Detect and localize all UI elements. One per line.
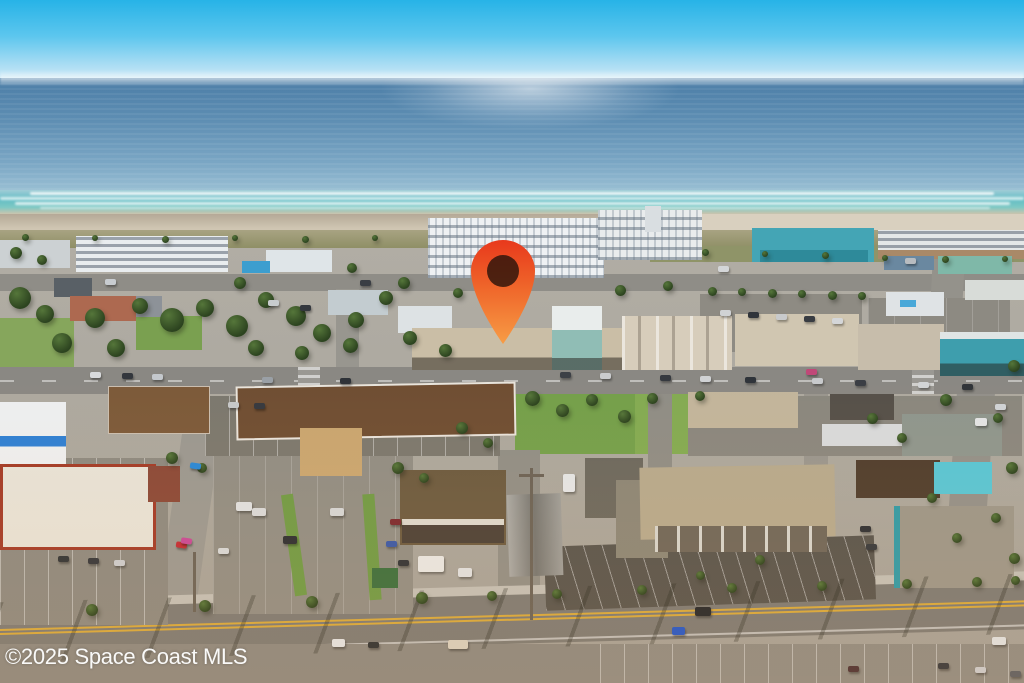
tree: [453, 288, 463, 298]
tree: [696, 571, 705, 580]
storefront: [552, 330, 602, 370]
car: [122, 373, 133, 379]
tree: [419, 473, 429, 483]
tree: [695, 391, 705, 401]
tree: [1009, 553, 1020, 564]
block: [940, 332, 1024, 339]
tree: [343, 338, 358, 353]
car: [995, 404, 1006, 410]
redtrim: [0, 464, 156, 550]
car: [600, 373, 611, 379]
car: [672, 627, 685, 635]
gable-v: [507, 493, 564, 577]
car: [560, 372, 571, 378]
tree: [762, 251, 768, 257]
car: [386, 541, 397, 547]
tree: [22, 234, 29, 241]
tree: [991, 513, 1001, 523]
tree: [942, 256, 949, 263]
block: [645, 206, 661, 232]
block: [902, 414, 1002, 456]
win-h: [76, 236, 228, 272]
foam: [30, 192, 994, 195]
tree: [226, 315, 248, 337]
car: [218, 548, 229, 554]
tree: [798, 290, 806, 298]
car: [776, 314, 787, 320]
block: [552, 306, 602, 332]
car: [448, 640, 468, 649]
block: [266, 250, 332, 272]
tree: [525, 391, 540, 406]
car: [228, 402, 239, 408]
win-h: [878, 230, 1024, 252]
block: [54, 278, 92, 297]
tree: [647, 393, 658, 404]
tree: [196, 299, 214, 317]
tree: [398, 277, 410, 289]
tree: [586, 394, 598, 406]
car: [152, 374, 163, 380]
car: [832, 318, 843, 324]
tree: [637, 585, 647, 595]
car: [236, 502, 252, 511]
block: [242, 261, 270, 273]
car: [855, 380, 866, 386]
block: [148, 466, 180, 502]
tree: [456, 422, 468, 434]
tree: [348, 312, 364, 328]
tree: [858, 292, 866, 300]
gables: [622, 316, 732, 370]
car: [905, 258, 916, 264]
tree: [347, 263, 357, 273]
tree: [940, 394, 952, 406]
block: [760, 250, 868, 262]
car: [262, 377, 273, 383]
tree: [993, 413, 1003, 423]
car: [563, 474, 575, 492]
car: [962, 384, 973, 390]
car: [90, 372, 101, 378]
tree: [379, 291, 393, 305]
watermark: ©2025 Space Coast MLS: [5, 644, 247, 670]
block: [938, 256, 1012, 274]
stalls-faint: [213, 456, 413, 614]
car: [720, 310, 731, 316]
tree: [306, 596, 318, 608]
tree: [1006, 462, 1018, 474]
cols: [655, 526, 827, 552]
car: [340, 378, 351, 384]
tree: [817, 581, 827, 591]
block: [965, 280, 1024, 300]
tree: [166, 452, 178, 464]
tree: [37, 255, 47, 265]
tree: [897, 433, 907, 443]
tree: [902, 579, 912, 589]
tree: [867, 413, 878, 424]
tree: [248, 340, 264, 356]
tree: [36, 305, 54, 323]
tree: [487, 591, 497, 601]
bluestripe: [0, 402, 66, 464]
car: [1010, 671, 1021, 677]
tree: [10, 247, 22, 259]
car: [268, 300, 279, 306]
tree: [199, 600, 211, 612]
car: [368, 642, 379, 648]
block: [300, 428, 362, 476]
car: [718, 266, 729, 272]
tree: [132, 298, 148, 314]
car: [748, 312, 759, 318]
tree: [85, 308, 105, 328]
block: [519, 474, 544, 477]
car: [700, 376, 711, 382]
tree: [107, 339, 125, 357]
location-pin-icon: [468, 237, 538, 345]
car: [332, 639, 345, 647]
car: [918, 382, 929, 388]
car: [992, 637, 1006, 645]
tree: [615, 285, 626, 296]
tree: [232, 235, 238, 241]
car: [806, 369, 817, 375]
tree: [882, 255, 888, 261]
car: [812, 378, 823, 384]
tree: [9, 287, 31, 309]
ridge: [236, 382, 517, 441]
block: [858, 324, 944, 370]
foam: [15, 202, 1010, 205]
ridge2: [108, 386, 210, 434]
car: [860, 526, 871, 532]
car: [660, 375, 671, 381]
tree: [1008, 360, 1020, 372]
car: [938, 663, 949, 669]
tree: [295, 346, 309, 360]
tree: [234, 277, 246, 289]
block: [372, 568, 398, 588]
car: [458, 568, 472, 577]
tree: [727, 583, 737, 593]
car: [252, 508, 266, 516]
tree: [1002, 256, 1008, 262]
tree: [1011, 576, 1020, 585]
tree: [160, 308, 184, 332]
tree: [483, 438, 493, 448]
car: [866, 544, 877, 550]
car: [398, 560, 409, 566]
tree: [822, 252, 829, 259]
car: [418, 556, 444, 572]
car: [254, 403, 265, 409]
tree: [52, 333, 72, 353]
block: [402, 525, 504, 543]
car: [58, 556, 69, 562]
block: [856, 460, 940, 498]
foam: [0, 197, 1024, 200]
car: [105, 279, 116, 285]
car: [975, 667, 986, 673]
car: [848, 666, 859, 672]
tree: [162, 236, 169, 243]
tree: [738, 288, 746, 296]
tree: [702, 249, 709, 256]
tree: [828, 291, 837, 300]
tree: [755, 555, 765, 565]
car: [745, 377, 756, 383]
tree: [302, 236, 309, 243]
block: [934, 462, 992, 494]
car: [360, 280, 371, 286]
aerial-listing-photo: ©2025 Space Coast MLS: [0, 0, 1024, 683]
stalls: [600, 644, 1024, 683]
tree: [392, 462, 404, 474]
block: [822, 424, 904, 446]
tree: [927, 493, 937, 503]
tree: [403, 331, 417, 345]
tree: [372, 235, 378, 241]
pin-hole: [487, 255, 519, 287]
tree: [552, 589, 562, 599]
car: [330, 508, 344, 516]
tree: [86, 604, 98, 616]
tree: [618, 410, 631, 423]
tree: [708, 287, 717, 296]
tree: [952, 533, 962, 543]
car: [283, 536, 297, 544]
car: [975, 418, 987, 426]
tree: [556, 404, 569, 417]
tree: [313, 324, 331, 342]
car: [114, 560, 125, 566]
crosswalk: [912, 367, 934, 394]
tree: [92, 235, 98, 241]
block: [830, 394, 894, 420]
block: [900, 300, 916, 307]
tree: [768, 289, 777, 298]
car: [804, 316, 815, 322]
foam: [40, 207, 990, 209]
tree: [439, 344, 452, 357]
tree: [663, 281, 673, 291]
tree: [416, 592, 428, 604]
car: [300, 305, 311, 311]
tree: [972, 577, 982, 587]
car: [88, 558, 99, 564]
car: [695, 607, 711, 616]
car: [390, 519, 401, 525]
